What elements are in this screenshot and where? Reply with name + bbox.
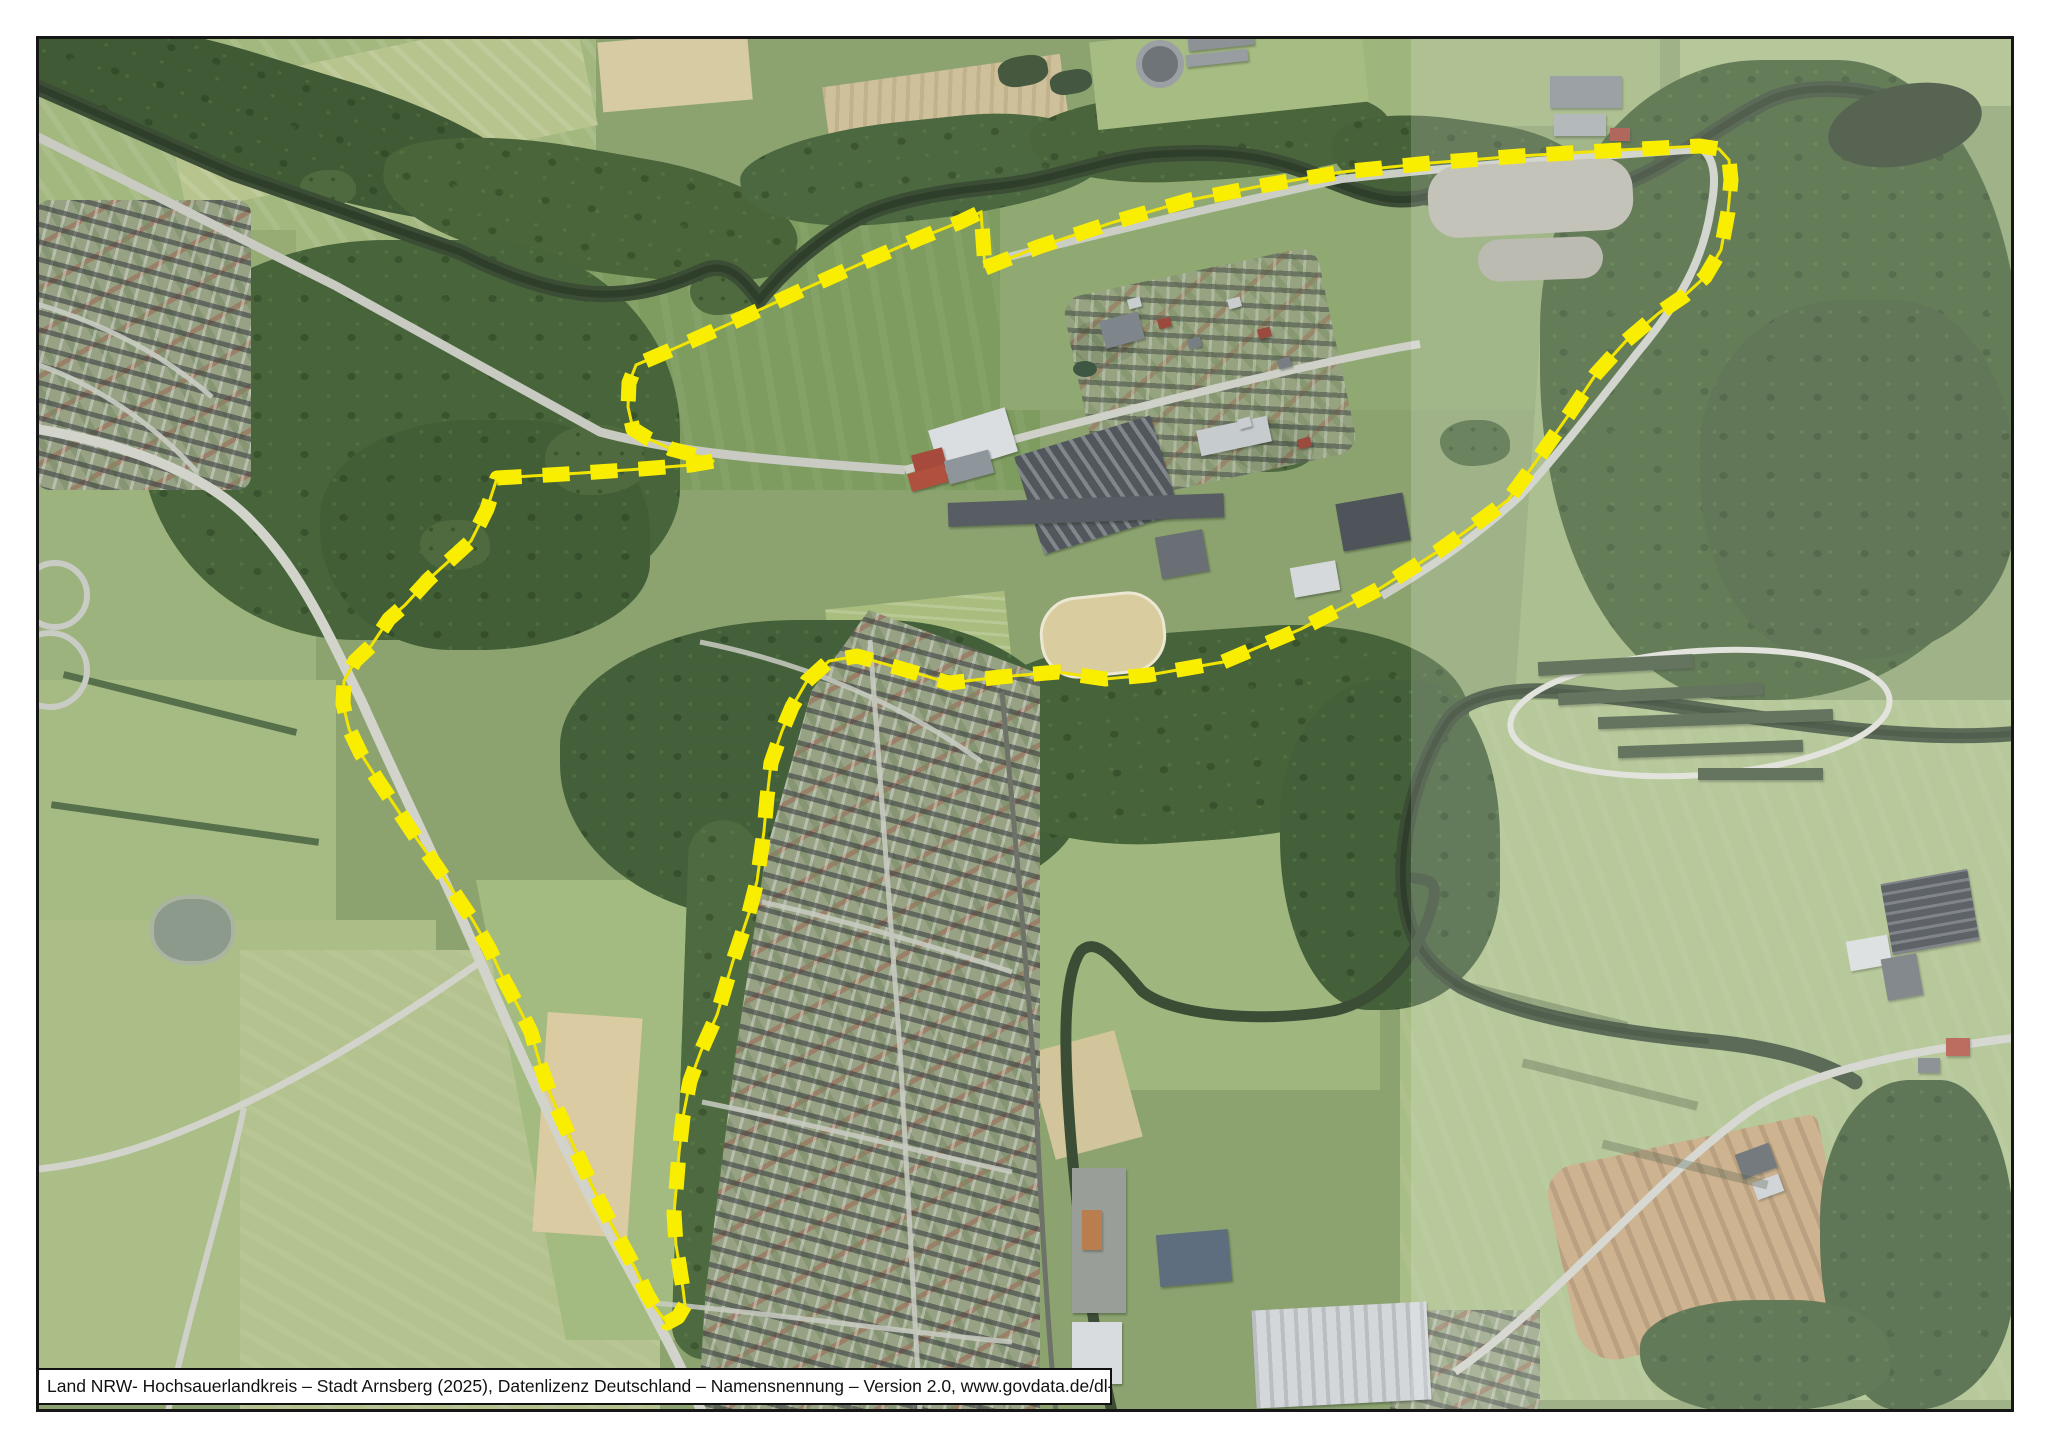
attribution-text: Land NRW- Hochsauerlandkreis – Stadt Arn… [47,1376,1112,1396]
map-frame: Land NRW- Hochsauerlandkreis – Stadt Arn… [36,36,2014,1412]
map-sheet: Land NRW- Hochsauerlandkreis – Stadt Arn… [0,0,2048,1448]
boundary-dashed-line [343,146,1731,1323]
site-boundary [36,36,2014,1412]
boundary-solid-line [343,146,1731,1323]
attribution-bar: Land NRW- Hochsauerlandkreis – Stadt Arn… [36,1368,1112,1405]
aerial-imagery [36,36,2014,1412]
